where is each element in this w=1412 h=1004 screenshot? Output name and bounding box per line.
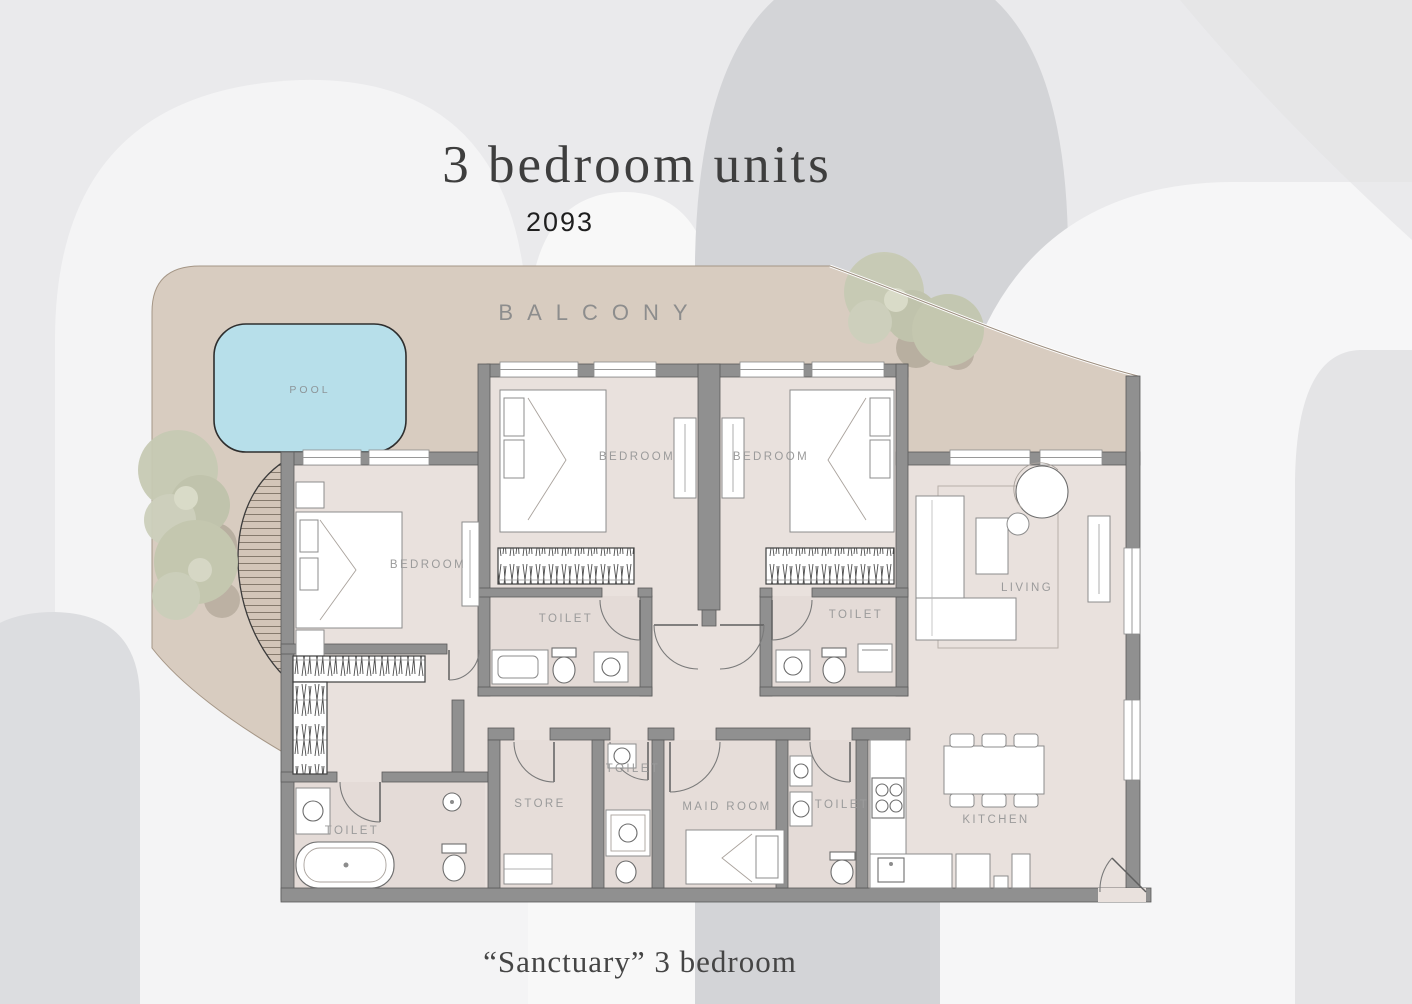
store-fixtures	[504, 854, 552, 884]
pool-label: POOL	[289, 384, 330, 396]
armchair	[1016, 466, 1068, 518]
floor-plan-canvas: 3 bedroom units 2093	[0, 0, 1412, 1004]
bedroom1-label: BEDROOM	[599, 451, 675, 463]
unit-number: 2093	[526, 207, 594, 237]
kitchen-label: KITCHEN	[962, 814, 1029, 826]
guest-toilet-label: TOILET	[606, 763, 660, 775]
kitchen-sink	[878, 858, 904, 882]
toilet2-label: TOILET	[829, 609, 883, 621]
master-toilet-label: TOILET	[325, 825, 379, 837]
wardrobe	[498, 548, 634, 584]
toilet1-label: TOILET	[539, 613, 593, 625]
plan-caption: “Sanctuary” 3 bedroom	[483, 944, 797, 979]
stove	[872, 778, 904, 818]
toilet1-fixtures	[492, 648, 628, 684]
wardrobe	[766, 548, 894, 584]
service-toilet-label: TOILET	[815, 799, 869, 811]
entrance-opening	[1098, 888, 1146, 902]
floor-plan-page: 3 bedroom units 2093	[0, 0, 1412, 1004]
bedroom2-label: BEDROOM	[733, 451, 809, 463]
maid-room-label: MAID ROOM	[682, 801, 771, 813]
balcony-label: BALCONY	[498, 300, 701, 325]
living-label: LIVING	[1001, 582, 1053, 594]
master-bedroom-label: BEDROOM	[390, 559, 466, 571]
maid-room-furniture	[686, 830, 784, 884]
page-title: 3 bedroom units	[442, 136, 831, 194]
store-label: STORE	[514, 798, 565, 810]
dining-table	[944, 746, 1044, 794]
